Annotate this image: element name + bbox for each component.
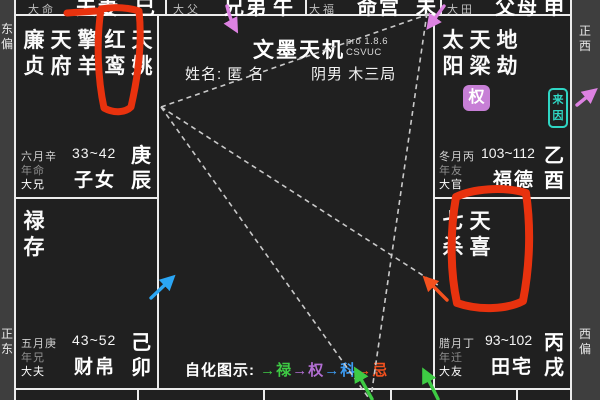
palace-meta: 六月辛 年命 大兄	[21, 150, 57, 192]
month-stem-label: 腊月丁	[439, 337, 475, 351]
palace-meta: 冬月丙 年友 大官	[439, 150, 475, 192]
legend-item-ke: →科	[324, 362, 356, 379]
palace-mao[interactable]: 禄存 五月庚 年兄 大夫 43~52 财帛 己卯	[16, 199, 157, 384]
age-range: 43~52	[72, 332, 116, 348]
palace-meta: 腊月丁 年迁 大友	[439, 337, 475, 379]
ziwei-chart-app: 东偏 正东 正西 西偏 大命 夫妻 巳 大父 兄弟 午 大福 命宫 未 大田 父…	[0, 0, 600, 400]
decade-palace-label: 大夫	[21, 365, 57, 379]
decade-limit-label: 大福	[309, 1, 337, 17]
legend-item-ji: →忌	[356, 362, 388, 379]
compass-left-strip: 东偏 正东	[0, 0, 14, 400]
palace-meta: 五月庚 年兄 大夫	[21, 337, 57, 379]
palace-name: 子女	[74, 165, 116, 192]
grid-line	[516, 390, 518, 400]
compass-due-east-label: 正东	[0, 327, 14, 357]
star-list: 廉贞 天府 擎羊 红鸾 天姚	[21, 28, 155, 80]
name-label: 姓名:	[185, 66, 222, 83]
palace-you[interactable]: 太阳 天梁 地劫 权 来因 冬月丙 年友 大官 103~112 福德 乙酉	[435, 16, 570, 197]
compass-right-strip: 正西 西偏	[572, 0, 600, 400]
month-stem-label: 五月庚	[21, 337, 57, 351]
center-panel: 文墨天机 pro 1.8.6 CSVUC 姓名: 匿 名 阴男 木三局 自化图示…	[159, 16, 433, 386]
palace-shen-partial[interactable]: 大田 父母 申	[442, 0, 570, 14]
month-stem-label: 冬月丙	[439, 150, 475, 164]
age-range: 93~102	[485, 332, 532, 348]
palace-wu-partial[interactable]: 大父 兄弟 午	[167, 0, 305, 14]
grid-line	[570, 0, 572, 400]
star-lucun: 禄存	[21, 209, 47, 261]
year-palace-label: 年命	[21, 164, 57, 178]
stem-branch-label: 己卯	[129, 331, 153, 381]
star-list: 太阳 天梁 地劫	[440, 28, 520, 80]
name-row: 姓名: 匿 名	[185, 63, 265, 84]
palace-zi-partial[interactable]	[265, 390, 390, 400]
star-tianyao: 天姚	[129, 28, 155, 80]
laiyin-badge: 来因	[548, 88, 568, 128]
star-lianzhen: 廉贞	[21, 28, 47, 80]
star-tianxi: 天喜	[467, 209, 493, 261]
stem-branch-label: 乙酉	[542, 144, 566, 194]
gender-bureau-row: 阴男 木三局	[311, 63, 396, 84]
star-taiyang: 太阳	[440, 28, 466, 80]
palace-yin-partial[interactable]	[16, 390, 137, 400]
legend-item-lu: →禄	[260, 362, 292, 379]
month-stem-label: 六月辛	[21, 150, 57, 164]
palace-chen[interactable]: 廉贞 天府 擎羊 红鸾 天姚 六月辛 年命 大兄 33~42 子女 庚辰	[16, 16, 157, 197]
legend-item-quan: →权	[292, 362, 324, 379]
star-qingyang: 擎羊	[75, 28, 101, 80]
decade-palace-label: 大友	[439, 365, 475, 379]
stem-branch-label: 庚辰	[129, 144, 153, 194]
palace-si-partial[interactable]: 大命 夫妻 巳	[16, 0, 165, 14]
gender-label: 阴男	[311, 66, 343, 83]
age-range: 33~42	[72, 145, 116, 161]
compass-east-offset-label: 东偏	[0, 22, 14, 52]
app-title: 文墨天机	[253, 34, 345, 64]
name-value: 匿 名	[227, 66, 264, 83]
star-list: 七杀 天喜	[440, 209, 493, 261]
star-dijie: 地劫	[494, 28, 520, 80]
year-palace-label: 年兄	[21, 351, 57, 365]
decade-palace-label: 大官	[439, 178, 475, 192]
palace-name: 财帛	[74, 352, 116, 379]
bureau-label: 木三局	[348, 66, 396, 83]
decade-limit-label: 大田	[447, 1, 475, 17]
stem-branch-label: 丙戌	[542, 331, 566, 381]
app-version: pro 1.8.6	[346, 36, 388, 47]
app-version-block: pro 1.8.6 CSVUC	[346, 36, 388, 58]
star-hongluan: 红鸾	[102, 28, 128, 80]
sihua-quan-badge: 权	[463, 85, 490, 111]
app-edition: CSVUC	[346, 47, 388, 58]
decade-palace-label: 大兄	[21, 178, 57, 192]
palace-wei-partial[interactable]: 大福 命宫 未	[307, 0, 440, 14]
year-palace-label: 年友	[439, 164, 475, 178]
star-list: 禄存	[21, 209, 47, 261]
year-palace-label: 年迁	[439, 351, 475, 365]
palace-name: 福德	[493, 165, 535, 192]
compass-due-west-label: 正西	[578, 24, 592, 54]
legend-title: 自化图示:	[185, 362, 255, 379]
decade-limit-label: 大命	[28, 1, 56, 17]
star-tianliang: 天梁	[467, 28, 493, 80]
age-range: 103~112	[481, 145, 535, 161]
compass-west-offset-label: 西偏	[578, 327, 592, 357]
decade-limit-label: 大父	[173, 1, 201, 17]
palace-name: 田宅	[491, 352, 533, 379]
star-tianfu: 天府	[48, 28, 74, 80]
palace-hai-partial[interactable]	[392, 390, 516, 400]
palace-chou-partial[interactable]	[139, 390, 263, 400]
star-qisha: 七杀	[440, 209, 466, 261]
sihua-legend: 自化图示: →禄→权→科→忌	[185, 359, 388, 380]
palace-xu[interactable]: 七杀 天喜 腊月丁 年迁 大友 93~102 田宅 丙戌	[435, 199, 570, 384]
